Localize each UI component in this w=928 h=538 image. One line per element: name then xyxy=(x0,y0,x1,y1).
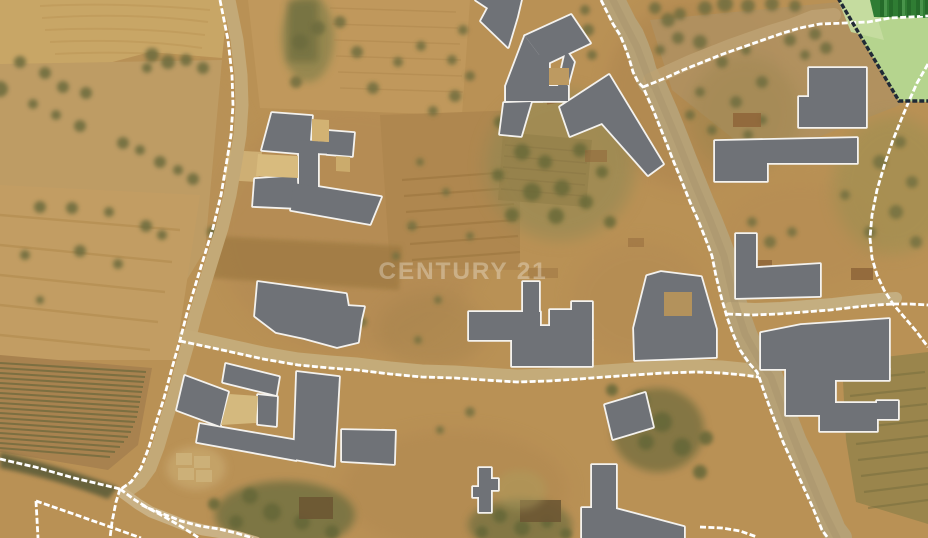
svg-text:CENTURY 21: CENTURY 21 xyxy=(378,258,547,285)
